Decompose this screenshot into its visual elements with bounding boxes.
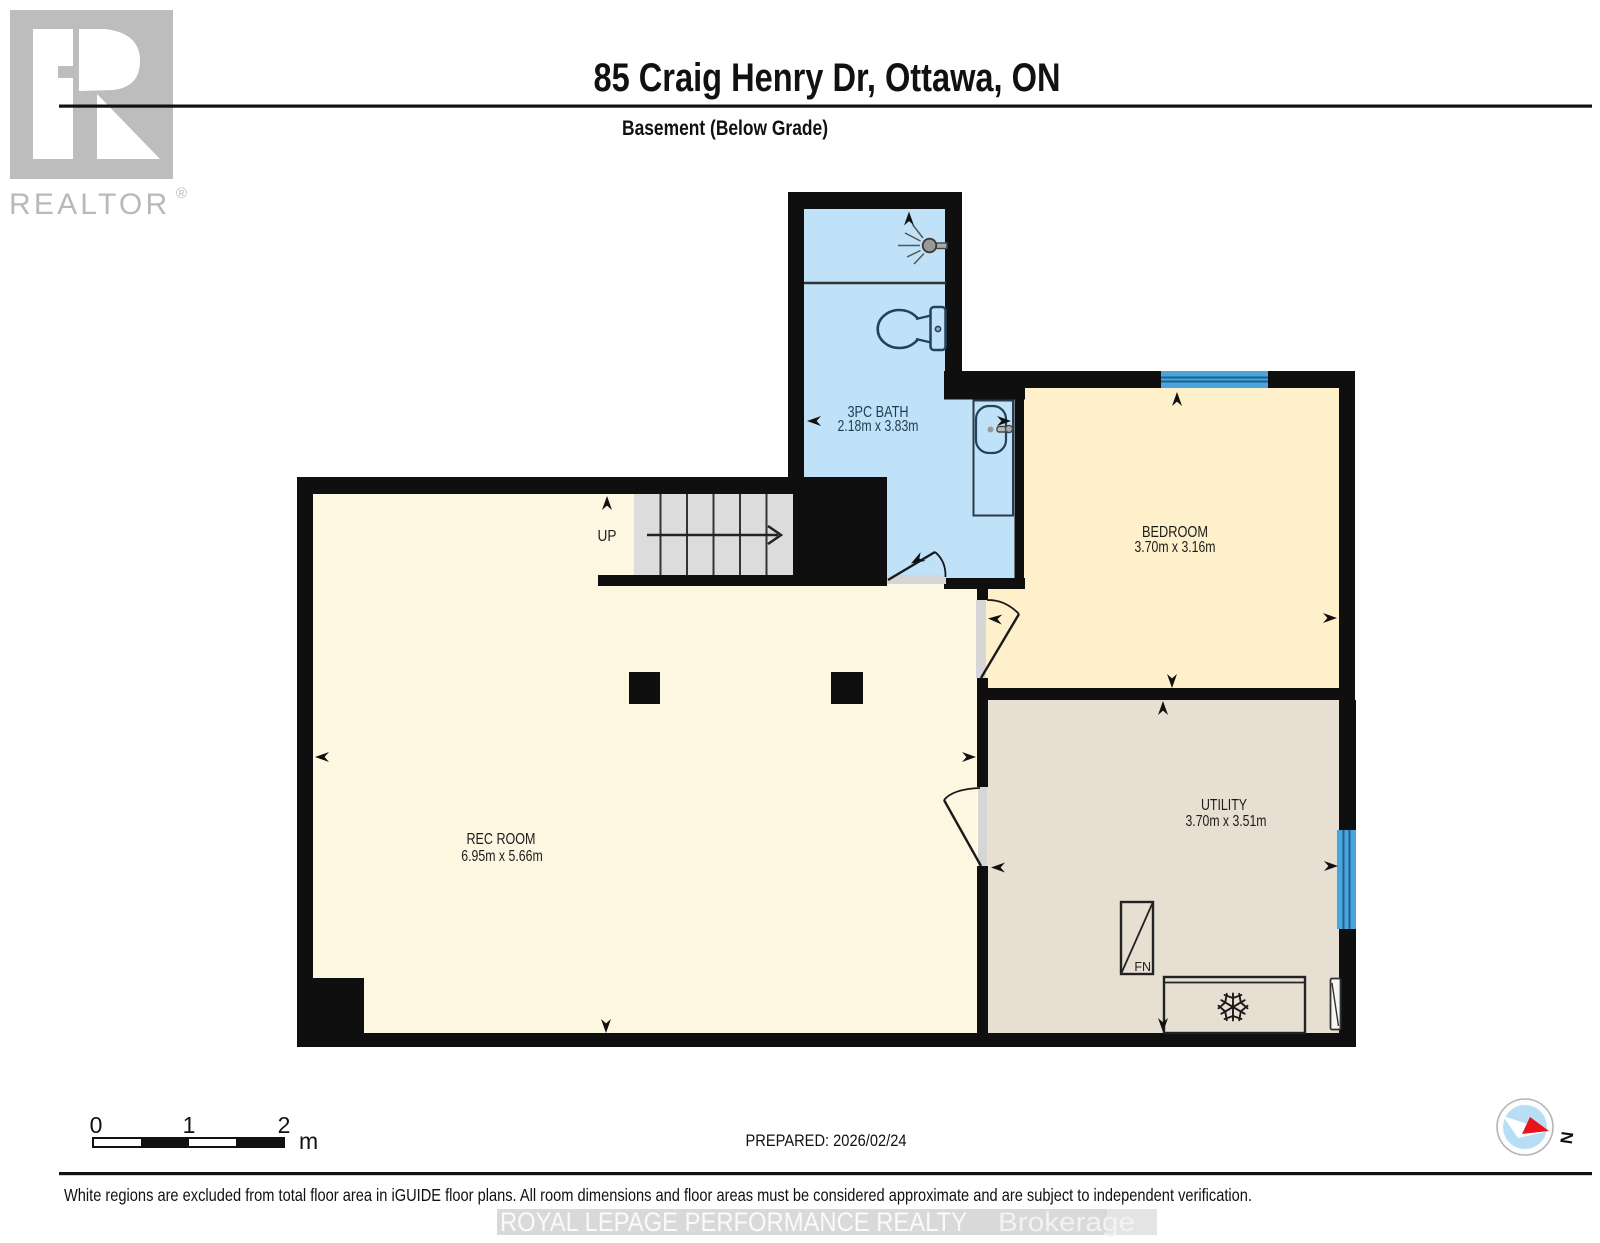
svg-text:®: ® [176, 185, 187, 202]
svg-text:FN: FN [1134, 960, 1151, 974]
svg-text:N: N [1556, 1130, 1577, 1145]
svg-text:Basement (Below Grade): Basement (Below Grade) [622, 117, 828, 140]
svg-text:1: 1 [183, 1112, 196, 1138]
svg-text:ROYAL LEPAGE PERFORMANCE REALT: ROYAL LEPAGE PERFORMANCE REALTY [500, 1207, 967, 1237]
svg-text:REALTOR: REALTOR [9, 188, 170, 221]
svg-text:PREPARED: 2026/02/24: PREPARED: 2026/02/24 [746, 1131, 907, 1150]
svg-text:2.18m x 3.83m: 2.18m x 3.83m [838, 418, 919, 435]
svg-text:6.95m x 5.66m: 6.95m x 5.66m [461, 848, 543, 865]
svg-text:REC ROOM: REC ROOM [467, 831, 536, 848]
svg-text:Brokerage: Brokerage [998, 1207, 1135, 1237]
svg-text:2: 2 [278, 1112, 291, 1138]
svg-text:m: m [299, 1128, 318, 1154]
svg-text:0: 0 [90, 1112, 103, 1138]
svg-text:3.70m x 3.16m: 3.70m x 3.16m [1135, 539, 1216, 556]
svg-text:UP: UP [598, 528, 617, 545]
svg-text:UTILITY: UTILITY [1201, 797, 1247, 814]
svg-text:85 Craig Henry Dr, Ottawa, ON: 85 Craig Henry Dr, Ottawa, ON [594, 56, 1061, 100]
svg-text:3.70m x 3.51m: 3.70m x 3.51m [1186, 813, 1267, 830]
svg-text:White regions are excluded fro: White regions are excluded from total fl… [64, 1185, 1252, 1205]
